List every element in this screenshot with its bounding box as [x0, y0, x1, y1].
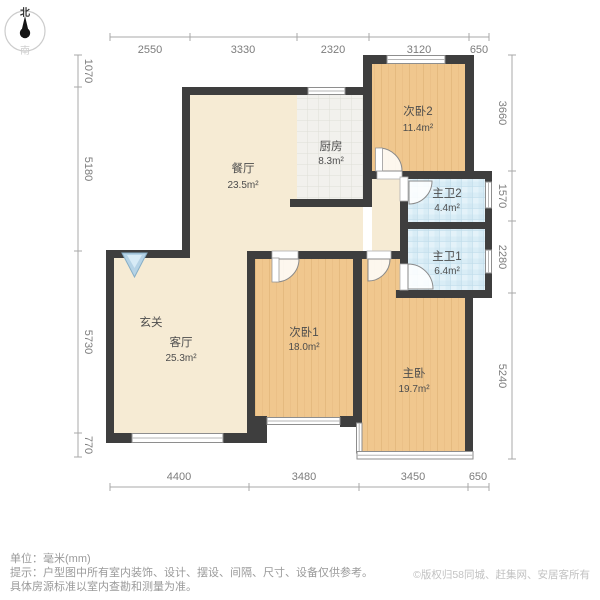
footer: 单位：毫米(mm) 提示：户型图中所有室内装饰、设计、摆设、间隔、尺寸、设备仅供… — [10, 551, 590, 593]
dim-left-3: 5730 — [82, 330, 94, 354]
bath1-name: 主卫1 — [432, 250, 461, 263]
footer-tip-line2: 具体房源标准以室内查勘和测量为准。 — [10, 579, 197, 593]
footer-unit-line: 单位：毫米(mm) — [10, 551, 91, 565]
kitchen-window — [308, 88, 345, 95]
living-name: 客厅 — [170, 335, 193, 349]
bedroom2-area: 11.4m² — [403, 123, 434, 134]
bath1-area: 6.4m² — [434, 266, 460, 277]
living-window — [132, 434, 223, 443]
kitchen-area: 8.3m² — [318, 156, 344, 167]
living-area: 25.3m² — [165, 353, 197, 364]
master-bay-window — [357, 452, 473, 460]
dim-bottom-2: 3480 — [292, 471, 316, 483]
master-door-opening — [367, 251, 391, 259]
dim-top-1: 2550 — [138, 44, 162, 56]
master-bay-side-window — [357, 423, 363, 453]
master-name: 主卧 — [403, 367, 426, 380]
footer-copyright: ©版权归58同城、赶集网、安居客所有 — [413, 568, 590, 581]
dimension-chain-top: 2550 3330 2320 3120 650 — [110, 33, 489, 56]
dim-right-3: 2280 — [496, 245, 508, 269]
bedroom2-door-leaf — [376, 148, 383, 171]
master-area: 19.7m² — [398, 384, 430, 395]
compass-hub-icon — [20, 28, 30, 38]
dim-top-3: 2320 — [321, 44, 345, 56]
dining-name: 餐厅 — [232, 161, 255, 175]
bedroom1-name: 次卧1 — [289, 325, 318, 339]
master-bay-floor — [362, 423, 465, 451]
entry-label: 玄关 — [140, 315, 163, 329]
dim-right-2: 1570 — [496, 184, 508, 208]
compass-south-label: 南 — [20, 44, 30, 57]
dimension-chain-right: 3660 1570 2280 5240 — [496, 55, 516, 459]
dim-right-1: 3660 — [496, 101, 508, 125]
dim-left-2: 5180 — [82, 157, 94, 181]
bath2-window — [486, 182, 492, 208]
dimension-chain-bottom: 4400 3480 3450 650 — [110, 471, 489, 491]
dimension-chain-left: 1070 5180 5730 770 — [74, 55, 94, 457]
dim-bottom-4: 650 — [469, 471, 487, 483]
bath-nook-floor — [372, 179, 400, 251]
dim-top-2: 3330 — [231, 44, 255, 56]
compass: 北 南 — [5, 6, 45, 57]
bedroom2-door-opening — [377, 171, 402, 179]
dim-left-1: 1070 — [82, 59, 94, 83]
bath2-area: 4.4m² — [434, 203, 460, 214]
bedroom1-door-leaf — [272, 258, 279, 282]
floorplan-page: 北 南 2550 3330 2320 3120 650 4400 3480 34… — [0, 0, 600, 600]
master-floor-main — [362, 290, 465, 423]
bath2-name: 主卫2 — [432, 187, 461, 200]
bedroom2-window — [387, 56, 445, 64]
bath2-door-opening — [400, 177, 408, 201]
bath1-door-opening — [400, 264, 408, 290]
dining-area: 23.5m² — [227, 180, 259, 191]
floorplan-canvas: 北 南 2550 3330 2320 3120 650 4400 3480 34… — [0, 0, 600, 600]
dim-bottom-3: 3450 — [401, 471, 425, 483]
kitchen-name: 厨房 — [320, 140, 343, 153]
bedroom2-name: 次卧2 — [403, 104, 432, 118]
bath1-window — [486, 250, 492, 273]
dim-right-4: 5240 — [496, 364, 508, 388]
dim-top-5: 650 — [470, 44, 488, 56]
entry-name: 玄关 — [140, 315, 163, 329]
dim-bottom-1: 4400 — [167, 471, 191, 483]
dim-left-4: 770 — [82, 436, 94, 454]
bedroom1-window — [267, 418, 340, 425]
footer-tip-line1: 提示：户型图中所有室内装饰、设计、摆设、间隔、尺寸、设备仅供参考。 — [10, 565, 373, 579]
bedroom1-area: 18.0m² — [288, 342, 320, 353]
dim-top-4: 3120 — [407, 44, 431, 56]
